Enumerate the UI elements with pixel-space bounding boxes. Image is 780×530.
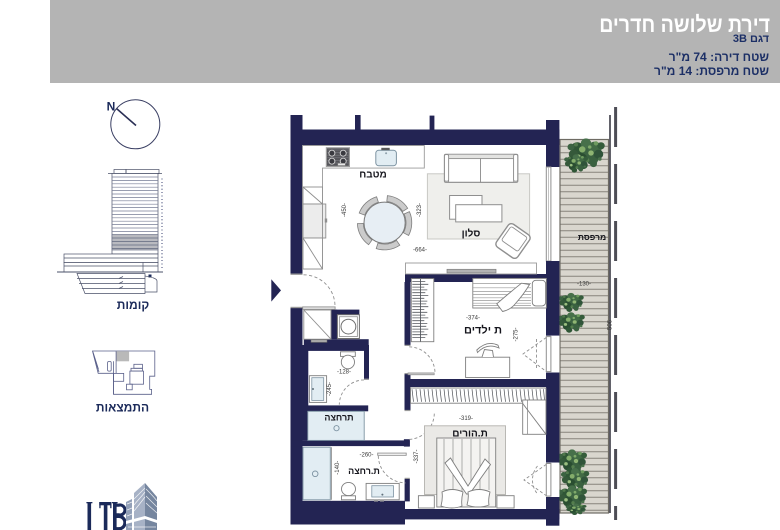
svg-text:-275-: -275-: [513, 327, 519, 341]
svg-text:ת.רחצה: ת.רחצה: [348, 466, 380, 476]
svg-text:N: N: [107, 100, 116, 114]
svg-text:-337-: -337-: [414, 449, 420, 463]
svg-text:-130-: -130-: [577, 282, 591, 288]
svg-text:סלון: סלון: [462, 228, 481, 240]
svg-text:-245-: -245-: [327, 382, 333, 396]
svg-text:-319-: -319-: [459, 416, 473, 422]
svg-text:-506-: -506-: [608, 318, 614, 332]
svg-text:-664-: -664-: [413, 248, 427, 254]
svg-text:התמצאות: התמצאות: [96, 401, 149, 415]
svg-text:-140-: -140-: [335, 461, 341, 475]
svg-text:קומות: קומות: [117, 298, 150, 312]
svg-text:מרפסת: מרפסת: [578, 232, 606, 242]
svg-text:-260-: -260-: [359, 452, 373, 458]
svg-text:ת.הורים: ת.הורים: [452, 429, 488, 440]
svg-text:-450-: -450-: [342, 203, 348, 217]
svg-text:תרחצה: תרחצה: [324, 413, 353, 423]
svg-text:-323-: -323-: [417, 203, 423, 217]
svg-text:-128-: -128-: [337, 370, 351, 376]
svg-text:-374-: -374-: [466, 316, 480, 322]
svg-text:ת ילדים: ת ילדים: [464, 324, 502, 337]
svg-text:מטבח: מטבח: [359, 170, 387, 181]
